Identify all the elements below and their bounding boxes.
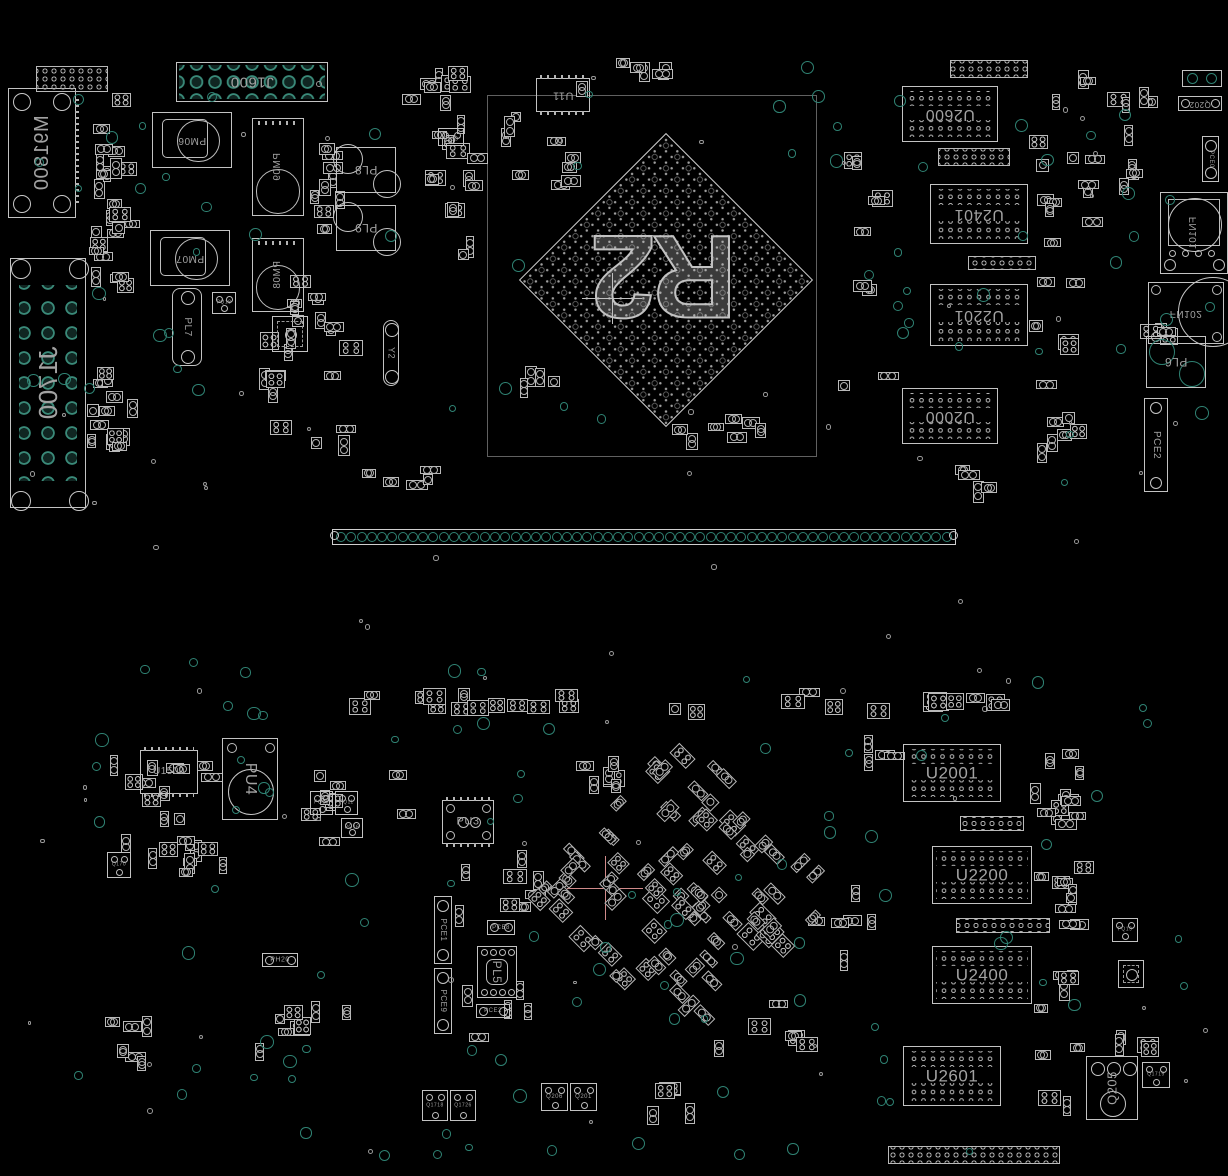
component-h3[interactable] [950, 60, 1028, 78]
test-point [660, 981, 669, 990]
micro-via [204, 486, 208, 490]
small-part [112, 272, 129, 282]
strip-via [665, 532, 675, 542]
small-part [867, 703, 890, 719]
small-part [548, 376, 559, 387]
micro-via [763, 392, 768, 397]
small-part [310, 190, 319, 204]
micro-via [1006, 678, 1011, 683]
small-part [397, 809, 416, 819]
micro-via [28, 1021, 32, 1025]
strip-via [890, 532, 900, 542]
test-point [1041, 839, 1052, 850]
pad-ring [426, 1094, 433, 1101]
test-point [106, 131, 118, 143]
component-pq11[interactable]: PQ11 [335, 791, 358, 815]
small-part [319, 143, 335, 155]
pad-ring [558, 1087, 565, 1094]
test-point [877, 1096, 886, 1105]
small-part [462, 985, 473, 1007]
test-point [465, 1144, 473, 1152]
strip-via [387, 532, 397, 542]
test-point [845, 749, 853, 757]
small-part [1045, 753, 1055, 769]
test-point [1061, 479, 1068, 486]
small-part [710, 887, 727, 904]
small-part [727, 432, 746, 444]
component-q1718[interactable]: Q1718 [422, 1090, 448, 1121]
pcb-boardview-canvas: R2M91800J1600J1700PM06PM07PM09PM08PL8PL9… [0, 0, 1228, 1176]
component-j1600[interactable]: J1600 [176, 62, 328, 102]
u2600-label: U2600 [925, 106, 975, 122]
small-part [317, 224, 332, 234]
small-part [159, 842, 178, 857]
small-part [319, 837, 340, 845]
micro-via [450, 185, 455, 190]
small-part [106, 391, 123, 402]
test-point [977, 288, 991, 302]
pin-comb [144, 793, 193, 797]
small-part [1070, 1043, 1085, 1051]
test-point [360, 918, 369, 927]
pad-ring [481, 949, 488, 956]
micro-via [1080, 116, 1085, 121]
test-point [597, 414, 606, 423]
component-pce2[interactable]: PCE2 [1144, 398, 1168, 492]
component-q205[interactable]: Q205 [1086, 1056, 1138, 1120]
small-part [112, 222, 124, 234]
test-point [735, 874, 742, 881]
small-part [425, 174, 439, 186]
small-part [423, 688, 446, 705]
micro-via [917, 456, 923, 462]
test-point [547, 1145, 557, 1155]
strip-via [675, 532, 685, 542]
test-point [543, 723, 555, 735]
small-part [527, 700, 549, 714]
component-h7[interactable] [36, 66, 108, 92]
micro-via [591, 76, 596, 81]
small-part [1030, 783, 1041, 804]
small-part [94, 179, 105, 199]
component-pq18[interactable]: PQ18 [212, 292, 236, 314]
component-q170[interactable]: Q170 [107, 852, 131, 878]
small-part [201, 773, 223, 782]
pad-ring [1208, 250, 1215, 257]
small-part [127, 399, 137, 418]
small-part [447, 202, 459, 217]
strip-via [644, 532, 654, 542]
small-part [105, 1017, 120, 1027]
pad-ring [1169, 250, 1176, 257]
y2-label: Y2 [387, 347, 396, 359]
component-pce1[interactable]: PCE1 [434, 896, 452, 964]
component-pl8[interactable]: PL8 [336, 147, 396, 193]
test-point [529, 931, 540, 942]
strip-via [829, 532, 839, 542]
small-part [308, 293, 326, 301]
test-point [258, 711, 267, 720]
small-part [389, 770, 407, 779]
pl9-label: PL9 [355, 222, 378, 234]
small-part [504, 116, 515, 137]
small-part [402, 94, 421, 106]
small-part [121, 834, 131, 853]
component-u2000[interactable]: U2000 [902, 388, 998, 444]
component-pq10[interactable]: PQ10 [310, 791, 333, 815]
pl7-label: PL7 [182, 317, 192, 336]
component-qfnb[interactable] [1118, 960, 1144, 988]
component-pq19[interactable]: PQ19 [1112, 918, 1138, 942]
strip-via [880, 532, 890, 542]
micro-via [241, 132, 245, 136]
small-part [424, 82, 441, 93]
micro-via [84, 798, 88, 802]
component-pm06[interactable]: PM06 [152, 112, 232, 168]
micro-via [886, 634, 891, 639]
component-u2601[interactable]: U2601 [903, 1046, 1001, 1106]
small-part [1082, 217, 1103, 226]
test-point [237, 756, 245, 764]
strip-via [747, 532, 757, 542]
small-part [806, 864, 825, 883]
test-point [35, 158, 44, 167]
small-part [1085, 155, 1105, 164]
small-part [110, 158, 121, 179]
small-part [448, 66, 468, 81]
small-part [1060, 338, 1079, 355]
small-part [503, 869, 527, 884]
small-part [630, 62, 646, 72]
small-part [330, 781, 347, 790]
component-u2600[interactable]: U2600 [902, 86, 998, 142]
pq11-label: PQ11 [339, 801, 353, 806]
component-pl5[interactable]: PL5 [477, 946, 517, 998]
corner-pad [1212, 285, 1222, 295]
test-point [449, 405, 456, 412]
test-point [477, 668, 486, 677]
pad-ring [552, 1102, 559, 1109]
small-part [991, 699, 1011, 711]
strip-via [613, 532, 623, 542]
small-part [87, 404, 100, 417]
crosshair-v [612, 273, 613, 324]
strip-via [685, 532, 695, 542]
small-part [99, 406, 115, 415]
pad-ring [490, 949, 497, 956]
strip-via [931, 532, 941, 542]
small-part [707, 932, 726, 951]
small-part [851, 885, 860, 902]
test-point [777, 859, 787, 869]
small-part [324, 322, 344, 332]
test-point [664, 920, 673, 929]
strip-via [469, 532, 479, 542]
small-part [576, 761, 594, 770]
strip-via [818, 532, 828, 542]
test-point [283, 1055, 296, 1068]
micro-via [967, 957, 972, 962]
component-u11[interactable]: U11 [536, 78, 590, 112]
component-pce2b[interactable]: PCE2 [476, 1004, 510, 1018]
test-point [585, 91, 592, 98]
test-point [787, 1143, 798, 1154]
component-q202[interactable]: Q202 [1178, 96, 1222, 111]
test-point [27, 374, 40, 387]
component-q206[interactable]: Q206 [541, 1083, 568, 1111]
small-part [179, 868, 194, 877]
test-point [447, 880, 455, 888]
test-point [211, 885, 219, 893]
small-part [110, 755, 119, 776]
component-u2400[interactable]: U2400 [932, 946, 1032, 1004]
strip-via [490, 532, 500, 542]
micro-via [687, 471, 692, 476]
small-part [1058, 971, 1079, 985]
small-part [284, 1005, 303, 1020]
small-part [1141, 1041, 1159, 1057]
strip-via [716, 532, 726, 542]
pad-ring [438, 1094, 445, 1101]
small-part [1061, 796, 1081, 806]
micro-via [1184, 1079, 1188, 1083]
test-point [600, 942, 611, 953]
component-h1[interactable] [938, 148, 1010, 166]
pad-ring [1182, 250, 1189, 257]
component-y2[interactable]: Y2 [383, 320, 399, 386]
component-h6[interactable] [888, 1146, 1060, 1164]
component-u1500[interactable]: U1500 [140, 750, 198, 794]
component-pu4[interactable]: PU4 [222, 738, 278, 820]
test-point [830, 154, 844, 168]
small-part [266, 371, 284, 388]
test-point [871, 1023, 879, 1031]
test-point [189, 658, 199, 668]
fn101-label: FN101 [1189, 217, 1199, 250]
small-part [458, 249, 469, 260]
strip-via [449, 532, 459, 542]
micro-via [589, 1120, 593, 1124]
small-part [1029, 135, 1048, 149]
small-part [1066, 278, 1085, 288]
component-pl7[interactable]: PL7 [172, 288, 202, 366]
micro-via [40, 839, 45, 844]
small-part [966, 693, 984, 703]
u2000-label: U2000 [925, 408, 975, 424]
pad-ring [221, 305, 228, 312]
test-point [442, 1129, 451, 1138]
pu4-label: PU4 [242, 763, 258, 796]
micro-via [609, 651, 614, 656]
pad-band [934, 221, 1024, 239]
pl6-label: PL6 [1165, 356, 1188, 368]
small-part [655, 1083, 675, 1099]
small-part [1080, 77, 1096, 85]
test-point [73, 94, 84, 105]
component-fn102[interactable]: FN102 [1148, 282, 1224, 344]
component-m91800[interactable]: M91800 [8, 88, 76, 218]
fn102-label: FN102 [1170, 308, 1203, 318]
test-point [74, 1071, 82, 1079]
small-part [342, 1005, 351, 1020]
component-mteal[interactable] [1182, 70, 1222, 87]
pad-ring [581, 1102, 588, 1109]
strip-via [500, 532, 510, 542]
micro-via [203, 482, 207, 486]
strip-via [398, 532, 408, 542]
mount-hole [13, 93, 31, 111]
component-pce0[interactable]: PCE0 [1202, 136, 1219, 182]
small-part [669, 743, 695, 769]
q1719-label: Q1719 [1147, 1073, 1165, 1078]
test-point [593, 963, 606, 976]
micro-via [307, 427, 311, 431]
small-part [311, 437, 322, 448]
pq19-label: PQ19 [1118, 928, 1133, 933]
small-part [364, 691, 380, 699]
component-pl9[interactable]: PL9 [336, 205, 396, 251]
strip-via [582, 532, 592, 542]
test-point [788, 149, 796, 157]
micro-via [239, 391, 244, 396]
component-q1719[interactable]: Q1719 [1142, 1062, 1170, 1088]
pin-comb [258, 121, 298, 125]
small-part [338, 435, 350, 456]
test-point [94, 816, 105, 827]
strip-via [736, 532, 746, 542]
pad-band [906, 393, 994, 408]
test-point [260, 1035, 274, 1049]
test-point [448, 664, 461, 677]
test-point [1195, 406, 1209, 420]
component-pl6[interactable]: PL6 [1146, 336, 1206, 388]
small-part [91, 267, 101, 287]
test-point [265, 788, 274, 797]
test-point [477, 717, 490, 730]
micro-via [732, 944, 738, 950]
strip-end-pad [949, 531, 958, 540]
pin-pad [1211, 99, 1220, 108]
qfn-core [1126, 969, 1138, 981]
micro-via [325, 136, 330, 141]
component-pce8[interactable]: PCE8 [487, 920, 515, 935]
small-part [838, 380, 850, 392]
small-part [324, 371, 342, 381]
small-part [708, 423, 724, 431]
micro-via [83, 785, 88, 790]
micro-via [282, 814, 287, 819]
micro-via [316, 817, 320, 821]
small-part [1074, 861, 1094, 874]
q206-label: Q206 [546, 1094, 563, 1100]
test-point [824, 826, 836, 838]
small-part [702, 970, 723, 991]
component-j1700[interactable]: J1700 [10, 258, 86, 508]
test-point [92, 762, 101, 771]
micro-via [92, 501, 96, 505]
test-point [75, 185, 82, 192]
small-part [1067, 152, 1079, 164]
small-part [714, 1040, 724, 1057]
component-q1726[interactable]: Q1726 [450, 1090, 476, 1121]
small-part [716, 768, 737, 789]
micro-via [1056, 316, 1061, 321]
micro-via [947, 304, 951, 308]
test-point [1000, 931, 1013, 944]
component-ph20[interactable]: PH20 [262, 953, 298, 967]
test-point [1091, 790, 1103, 802]
micro-via [483, 676, 487, 680]
small-part [755, 423, 766, 438]
mount-hole [53, 93, 71, 111]
test-point [240, 667, 250, 677]
pad-ring [116, 869, 123, 876]
test-point [812, 90, 825, 103]
component-pq16[interactable]: PQ16 [341, 818, 363, 838]
test-point [58, 373, 70, 385]
component-q210[interactable]: Q210 [438, 128, 464, 146]
strip-via [531, 532, 541, 542]
test-point [864, 270, 874, 280]
test-point [573, 162, 581, 170]
small-part [177, 836, 195, 846]
pl8-label: PL8 [355, 164, 378, 176]
micro-via [147, 1108, 153, 1114]
component-u2200[interactable]: U2200 [932, 846, 1032, 904]
test-point [513, 1089, 527, 1103]
small-part [1063, 1096, 1071, 1116]
micro-via [1074, 539, 1079, 544]
component-pm08[interactable]: PM08 [252, 238, 304, 312]
test-point [879, 889, 892, 902]
small-part [946, 693, 964, 710]
test-point [794, 994, 807, 1007]
test-point [1116, 344, 1125, 353]
small-part [647, 1106, 659, 1125]
component-h4[interactable] [960, 816, 1024, 831]
small-part [547, 137, 566, 146]
test-point [232, 806, 240, 814]
component-pm09[interactable]: PM09 [252, 118, 304, 216]
pce2-label: PCE2 [1151, 431, 1161, 459]
small-part [725, 414, 742, 424]
component-q201[interactable]: Q201 [570, 1083, 597, 1111]
small-part [864, 754, 874, 770]
small-part [1034, 1004, 1048, 1012]
small-part [520, 378, 528, 398]
micro-via [1139, 471, 1143, 475]
small-part [117, 1044, 128, 1058]
strip-via [552, 532, 562, 542]
pad-ring [508, 989, 515, 996]
pad-band [936, 851, 1028, 866]
micro-via [433, 555, 439, 561]
small-part [1059, 920, 1080, 929]
test-point [95, 733, 109, 747]
small-part [825, 699, 844, 716]
u1500-label: U1500 [153, 767, 185, 777]
component-u2401[interactable]: U2401 [930, 184, 1028, 244]
test-point [894, 248, 902, 256]
component-qfna[interactable] [272, 316, 308, 352]
small-part [1075, 766, 1084, 780]
test-point [517, 770, 525, 778]
strip-via [480, 532, 490, 542]
component-pm07[interactable]: PM07 [150, 230, 230, 286]
component-h2[interactable] [968, 256, 1036, 270]
corner-pad [1212, 332, 1222, 342]
pce8-label: PCE8 [492, 925, 510, 931]
